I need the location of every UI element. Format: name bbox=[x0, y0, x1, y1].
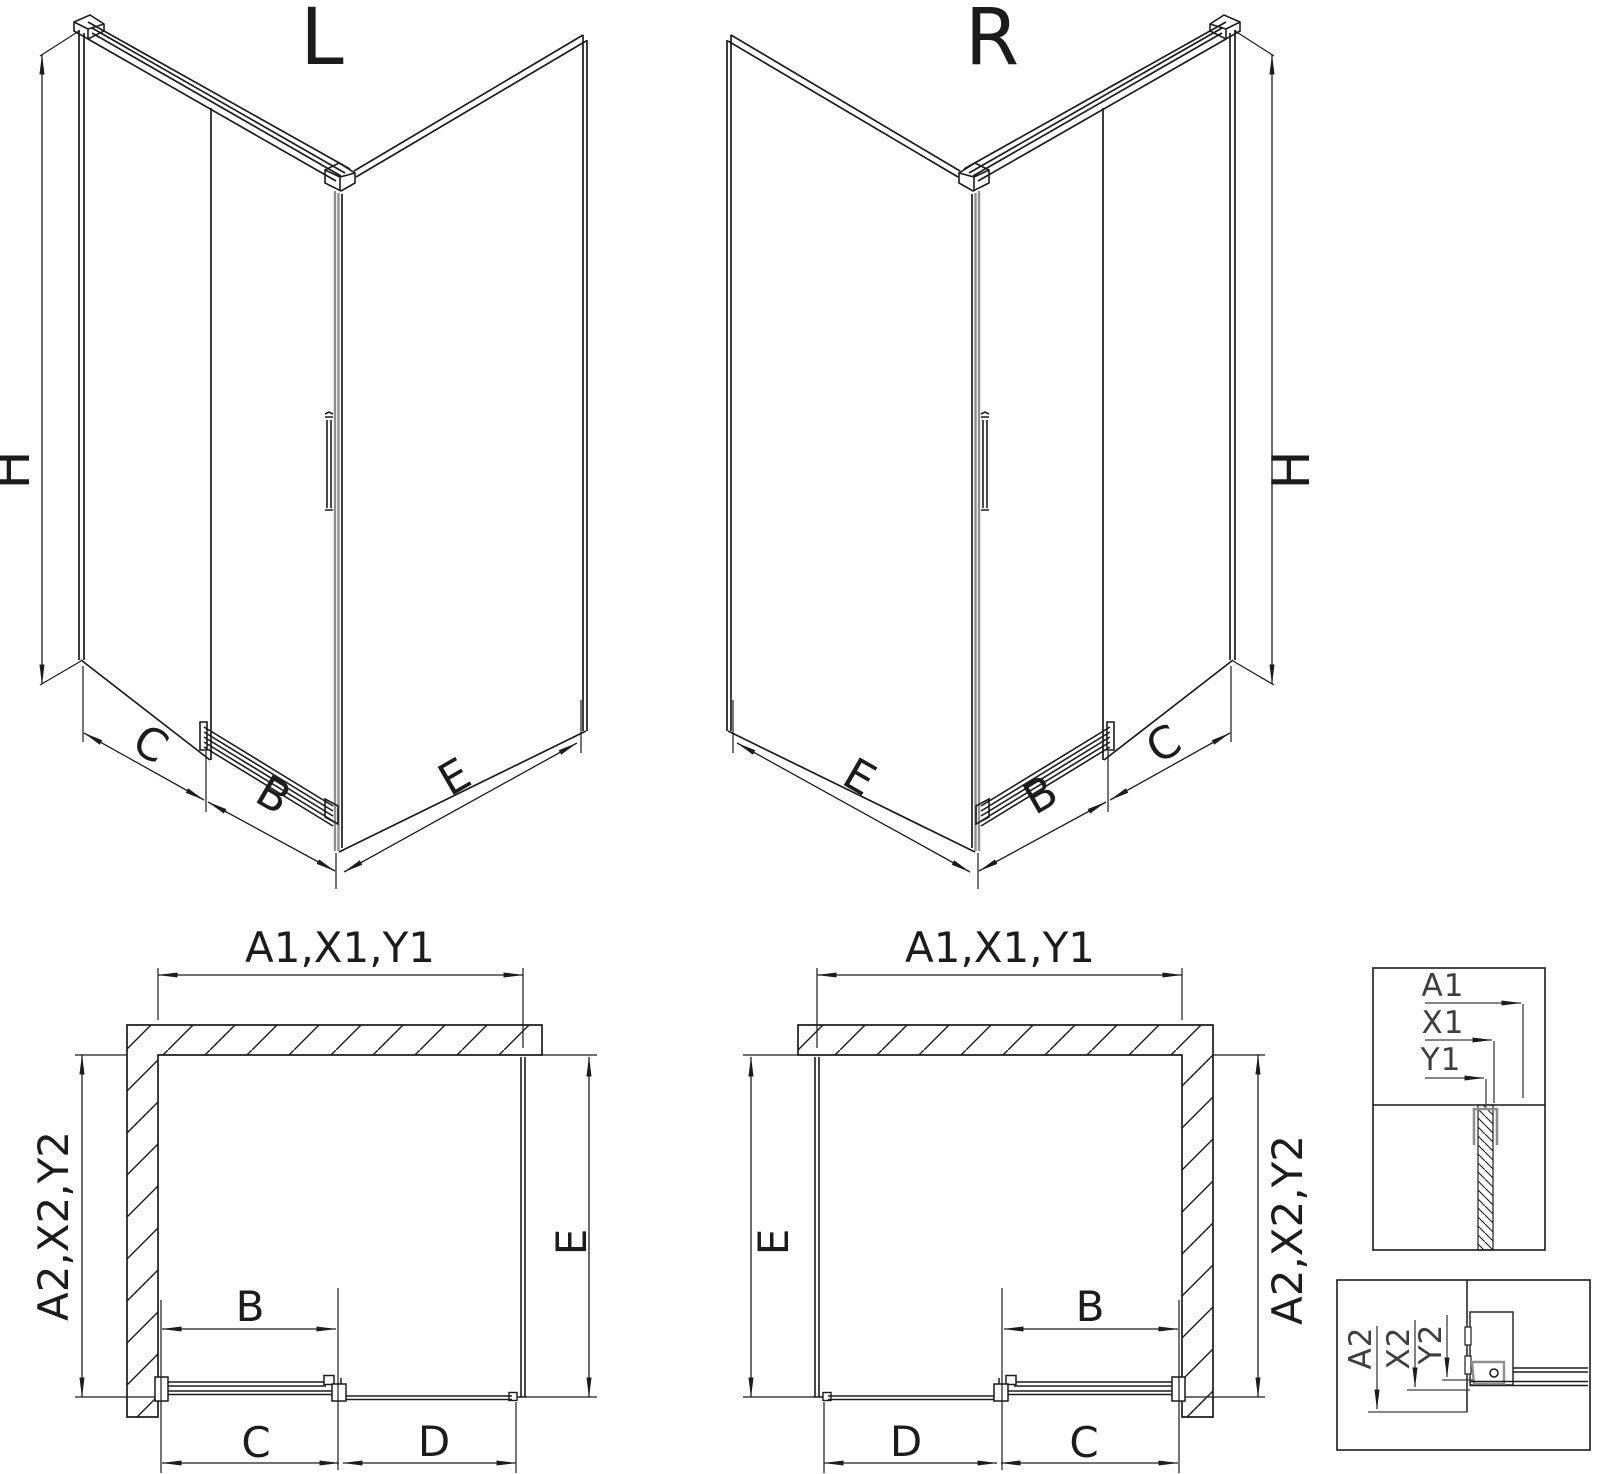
detail-top-y1-label: Y1 bbox=[1420, 1042, 1462, 1078]
detail-bottom-profile-tab-2 bbox=[1465, 1356, 1471, 1374]
detail-bottom-a2-label: A2 bbox=[1343, 1327, 1379, 1370]
iso-right-dim-height-label: H bbox=[1262, 450, 1322, 489]
detail-bottom-x2-label: X2 bbox=[1381, 1327, 1417, 1370]
iso-left-dim-height-label: H bbox=[0, 450, 42, 489]
plan-left-dim-depth-right-label: E bbox=[547, 1229, 596, 1256]
plan-right-dim-c-label: C bbox=[1069, 1418, 1098, 1467]
drawing-background bbox=[0, 0, 1600, 1474]
plan-left-dim-door-label: B bbox=[236, 1282, 265, 1331]
detail-bottom-profile-tab-1 bbox=[1465, 1327, 1471, 1345]
detail-top-a1-label: A1 bbox=[1422, 968, 1465, 1004]
shower-enclosure-drawing: L H C B E R H C B E A1,X1,Y1 A2,X2,Y2 E … bbox=[0, 0, 1600, 1474]
detail-top-glass-section bbox=[1478, 1105, 1493, 1250]
plan-right-dim-d-label: D bbox=[890, 1417, 922, 1466]
plan-left-dim-width-label: A1,X1,Y1 bbox=[245, 923, 435, 972]
plan-left-dim-depth-left-label: A2,X2,Y2 bbox=[29, 1131, 78, 1321]
detail-bottom-y2-label: Y2 bbox=[1413, 1324, 1449, 1366]
plan-left-dim-c-label: C bbox=[241, 1418, 270, 1467]
plan-right-dim-door-label: B bbox=[1076, 1282, 1105, 1331]
plan-right-dim-width-label: A1,X1,Y1 bbox=[905, 923, 1095, 972]
plan-right-dim-depth-left-label: E bbox=[749, 1229, 798, 1256]
plan-left-dim-d-label: D bbox=[418, 1417, 450, 1466]
detail-bottom-roller-dot bbox=[1490, 1369, 1498, 1377]
detail-top-x1-label: X1 bbox=[1422, 1005, 1465, 1041]
iso-right-title: R bbox=[965, 0, 1019, 83]
plan-right-dim-depth-right-label: A2,X2,Y2 bbox=[1263, 1135, 1312, 1325]
technical-drawing-page: L H C B E R H C B E A1,X1,Y1 A2,X2,Y2 E … bbox=[0, 0, 1600, 1474]
iso-left-title: L bbox=[300, 0, 344, 83]
